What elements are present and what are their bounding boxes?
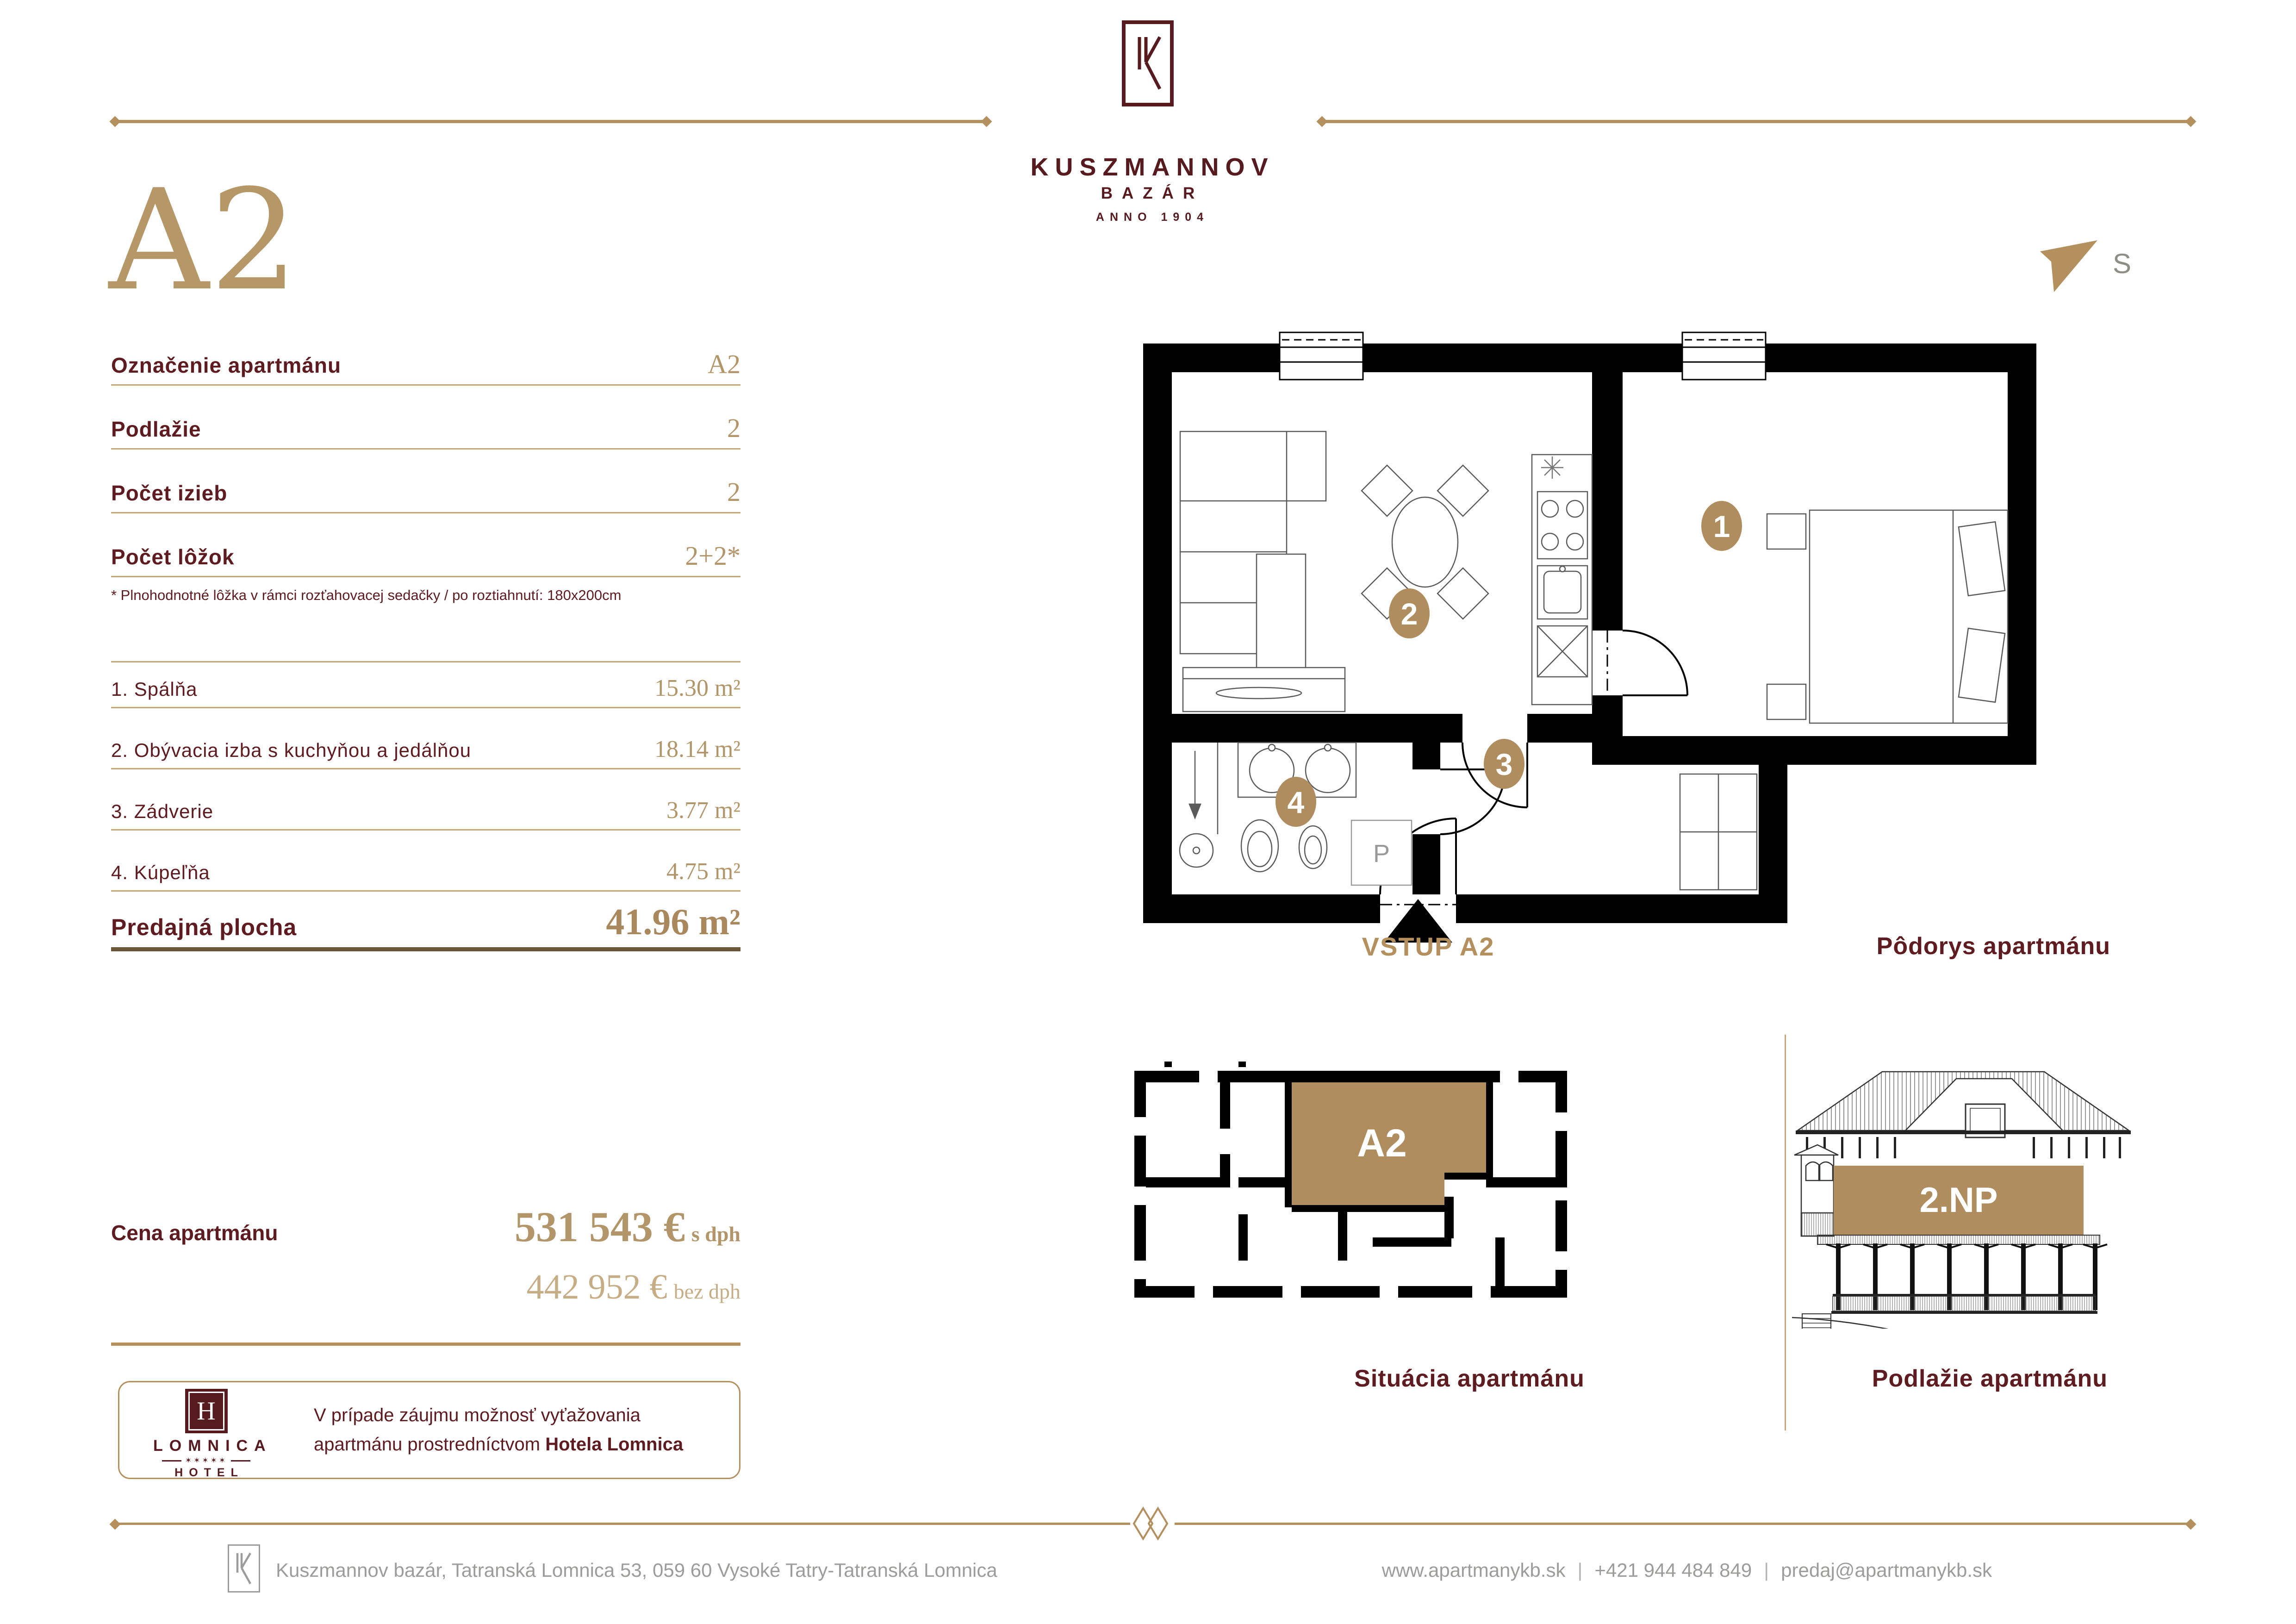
details-label: Počet izieb	[111, 481, 227, 506]
details-label: Podlažie	[111, 417, 201, 442]
footer-monogram-box	[228, 1544, 260, 1593]
elevation-frieze	[1806, 1137, 2121, 1158]
details-row-floor: Podlažie 2	[111, 394, 740, 450]
room-area: 15.30 m²	[654, 676, 740, 700]
top-left-divider	[115, 120, 987, 123]
brand-anno: ANNO 1904	[990, 211, 1314, 224]
hotel-monogram-box: H	[185, 1389, 228, 1433]
price-without-vat: 442 952 €	[527, 1268, 667, 1306]
footer-address: Kuszmannov bazár, Tatranská Lomnica 53, …	[276, 1559, 997, 1581]
room-area: 4.75 m²	[666, 860, 740, 884]
footer-phone: +421 944 484 849	[1594, 1559, 1752, 1581]
brand-monogram-k-icon	[1126, 24, 1170, 103]
footer-ornament-icon	[1130, 1505, 1175, 1542]
total-area-label: Predajná plocha	[111, 914, 297, 941]
elevation-turret	[1794, 1145, 1838, 1236]
footer-email: predaj@apartmanykb.sk	[1781, 1559, 1992, 1581]
total-area-value: 41.96 m²	[606, 904, 740, 941]
hotel-monogram: H	[188, 1392, 224, 1430]
footer-website: www.apartmanykb.sk	[1382, 1559, 1566, 1581]
room-area: 18.14 m²	[654, 737, 740, 762]
hotel-stars-row: ✶✶✶✶✶	[147, 1456, 266, 1465]
hotel-lomnica-note-box: H LOMNICA ✶✶✶✶✶ HOTEL V prípade záujmu m…	[118, 1381, 740, 1479]
hotel-note-text: V prípade záujmu možnosť vyťažovania apa…	[314, 1401, 683, 1459]
room-row-vestibule: 3. Zádverie 3.77 m²	[111, 787, 740, 831]
hotel-lomnica-logo: H LOMNICA ✶✶✶✶✶ HOTEL	[147, 1382, 266, 1480]
footer-contacts: www.apartmanykb.sk|+421 944 484 849|pred…	[1250, 1559, 1992, 1581]
details-label: Počet lôžok	[111, 544, 235, 569]
elevation-caption: Podlažie apartmánu	[1802, 1365, 2108, 1393]
details-row-designation: Označenie apartmánu A2	[111, 330, 740, 386]
room-label: 4. Kúpeľňa	[111, 862, 210, 884]
note-line2-bold: Hotela Lomnica	[545, 1434, 683, 1455]
price-with-vat-note: s dph	[691, 1222, 740, 1246]
compass-label: S	[2113, 248, 2131, 279]
room-label: 1. Spálňa	[111, 678, 197, 700]
room-row-bedroom: 1. Spálňa 15.30 m²	[111, 666, 740, 708]
compass: S	[2027, 229, 2184, 312]
brand-name: KUSZMANNOV	[990, 153, 1314, 181]
rooms-table-top-border	[111, 661, 740, 662]
total-area-row: Predajná plocha 41.96 m²	[111, 900, 740, 951]
situation-caption: Situácia apartmánu	[1321, 1365, 1618, 1393]
beds-footnote: * Plnohodnotné lôžka v rámci rozťahovace…	[111, 587, 740, 604]
badge-living: 2	[1401, 597, 1418, 631]
apartment-factsheet-page: KUSZMANNOV BAZÁR ANNO 1904 S A2 Označeni…	[0, 0, 2296, 1624]
details-value: 2+2*	[685, 543, 740, 569]
note-line1: V prípade záujmu možnosť vyťažovania	[314, 1401, 683, 1430]
floor-plan: P 1 2 3 4	[1143, 330, 2036, 945]
hotel-type: HOTEL	[147, 1466, 266, 1480]
room-label: 2. Obývacia izba s kuchyňou a jedálňou	[111, 739, 471, 762]
price-with-vat-line: 531 543 €s dph	[111, 1206, 740, 1248]
badge-hall: 3	[1496, 747, 1513, 781]
stars-bar-left	[162, 1460, 181, 1462]
compass-arrow-icon	[2040, 240, 2097, 292]
bottom-section-divider	[1785, 1035, 1786, 1430]
details-row-beds: Počet lôžok 2+2*	[111, 521, 740, 577]
footer-monogram-k-icon	[229, 1546, 259, 1591]
badge-bath: 4	[1288, 785, 1305, 819]
stars-bar-right	[231, 1460, 250, 1462]
floor-plan-caption: Pôdorys apartmánu	[1805, 932, 2110, 960]
room-area: 3.77 m²	[666, 799, 740, 823]
top-right-divider	[1322, 120, 2191, 123]
details-value: 2	[727, 415, 740, 442]
price-without-vat-note: bez dph	[674, 1280, 740, 1303]
footer-separator: |	[1565, 1559, 1594, 1581]
details-value: 2	[727, 479, 740, 506]
price-divider	[111, 1343, 740, 1346]
details-label: Označenie apartmánu	[111, 353, 341, 378]
price-with-vat: 531 543 €	[515, 1203, 685, 1250]
room-row-bathroom: 4. Kúpeľňa 4.75 m²	[111, 848, 740, 892]
price-without-vat-line: 442 952 €bez dph	[111, 1269, 740, 1305]
note-line2: apartmánu prostredníctvom Hotela Lomnica	[314, 1430, 683, 1459]
footer-separator: |	[1752, 1559, 1781, 1581]
details-row-room-count: Počet izieb 2	[111, 457, 740, 513]
elevation-floor-label: 2.NP	[1920, 1181, 1998, 1220]
washer-label: P	[1373, 840, 1390, 868]
situation-unit-label: A2	[1357, 1121, 1406, 1165]
elevation-veranda	[1802, 1235, 2107, 1329]
brand-sub: BAZÁR	[990, 184, 1314, 203]
hotel-stars: ✶✶✶✶✶	[185, 1456, 227, 1465]
brand-monogram-box	[1122, 20, 1174, 106]
room-row-living: 2. Obývacia izba s kuchyňou a jedálňou 1…	[111, 726, 740, 769]
elevation-roof	[1796, 1072, 2131, 1137]
apartment-code-heading: A2	[109, 171, 299, 310]
badge-bedroom: 1	[1713, 509, 1730, 543]
elevation-terrain-line	[1792, 1318, 2144, 1329]
details-value: A2	[708, 351, 740, 378]
elevation-drawing: 2.NP	[1792, 1060, 2144, 1329]
entrance-label: VSTUP A2	[1331, 931, 1525, 962]
hotel-name: LOMNICA	[147, 1437, 266, 1455]
situation-plan: A2	[1120, 1062, 1581, 1307]
room-label: 3. Zádverie	[111, 800, 213, 823]
